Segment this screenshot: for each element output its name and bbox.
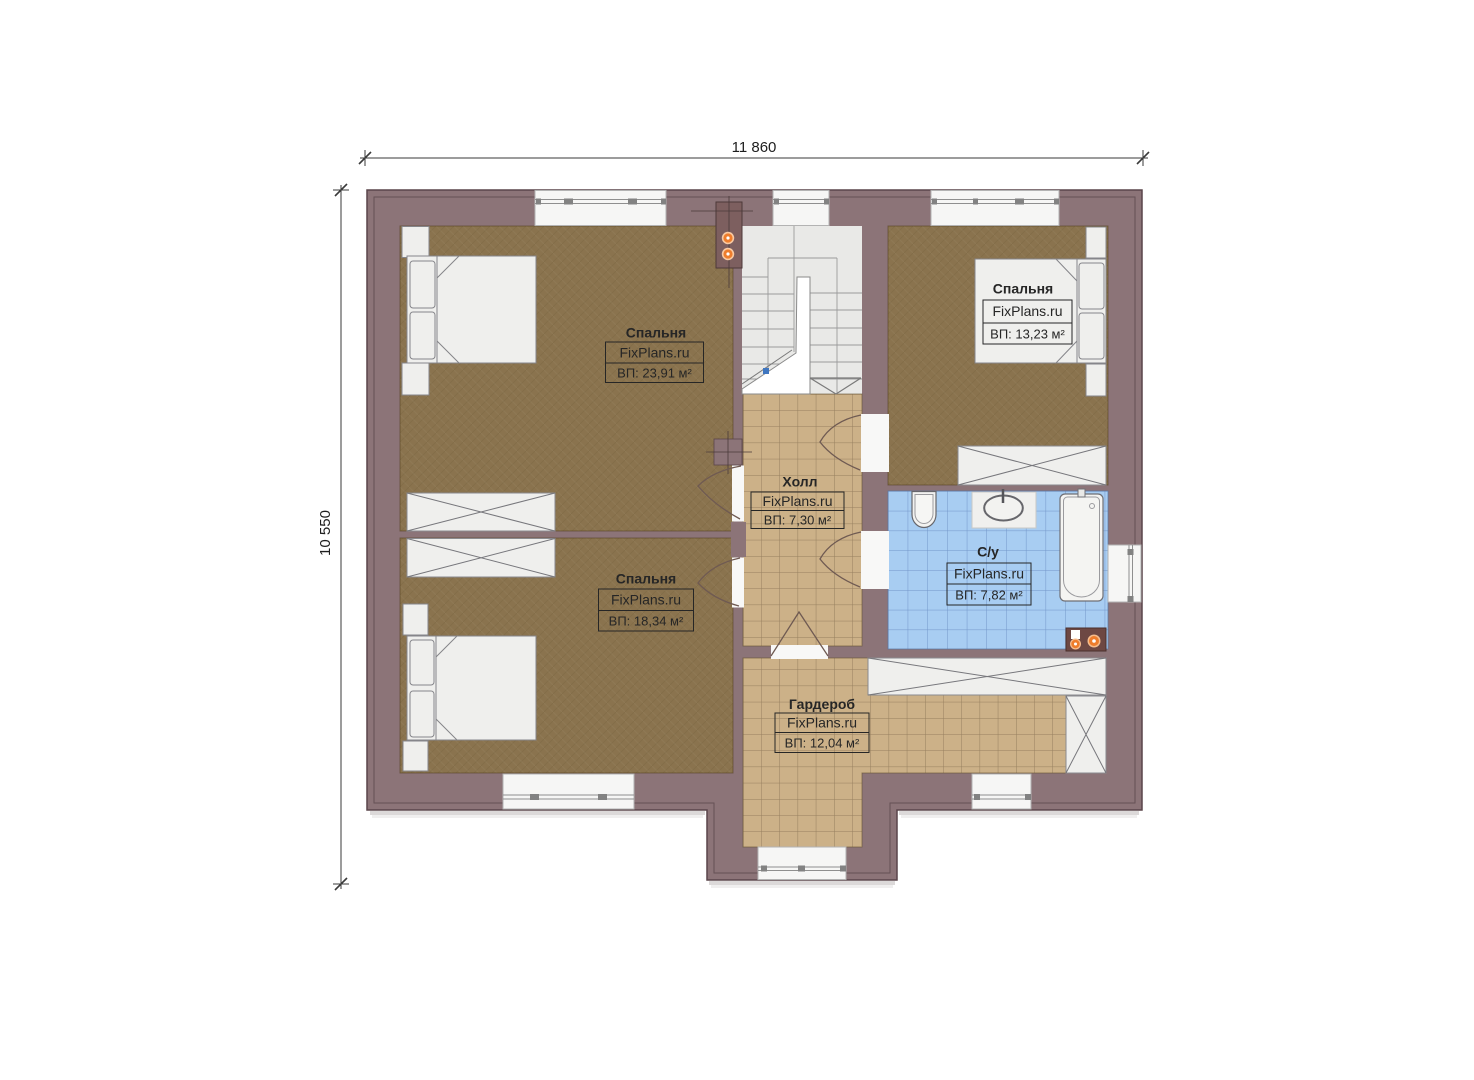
- svg-text:Холл: Холл: [782, 474, 817, 490]
- svg-text:FixPlans.ru: FixPlans.ru: [762, 493, 832, 509]
- svg-text:ВП: 18,34 м²: ВП: 18,34 м²: [609, 614, 684, 629]
- svg-text:10 550: 10 550: [317, 510, 334, 556]
- svg-text:FixPlans.ru: FixPlans.ru: [787, 715, 857, 731]
- svg-text:Спальня: Спальня: [993, 281, 1053, 297]
- svg-text:ВП: 23,91 м²: ВП: 23,91 м²: [617, 366, 692, 381]
- svg-text:FixPlans.ru: FixPlans.ru: [992, 303, 1062, 319]
- svg-text:FixPlans.ru: FixPlans.ru: [611, 592, 681, 608]
- svg-text:С/у: С/у: [977, 544, 999, 560]
- svg-text:11 860: 11 860: [732, 139, 777, 156]
- svg-text:ВП: 12,04 м²: ВП: 12,04 м²: [785, 736, 860, 751]
- svg-text:Спальня: Спальня: [626, 325, 686, 341]
- svg-text:ВП: 7,30 м²: ВП: 7,30 м²: [764, 513, 832, 528]
- svg-text:ВП: 13,23 м²: ВП: 13,23 м²: [990, 327, 1065, 342]
- svg-text:FixPlans.ru: FixPlans.ru: [954, 566, 1024, 582]
- svg-text:Спальня: Спальня: [616, 571, 676, 587]
- svg-text:Гардероб: Гардероб: [789, 696, 856, 712]
- svg-text:ВП: 7,82 м²: ВП: 7,82 м²: [955, 588, 1023, 603]
- svg-text:FixPlans.ru: FixPlans.ru: [619, 345, 689, 361]
